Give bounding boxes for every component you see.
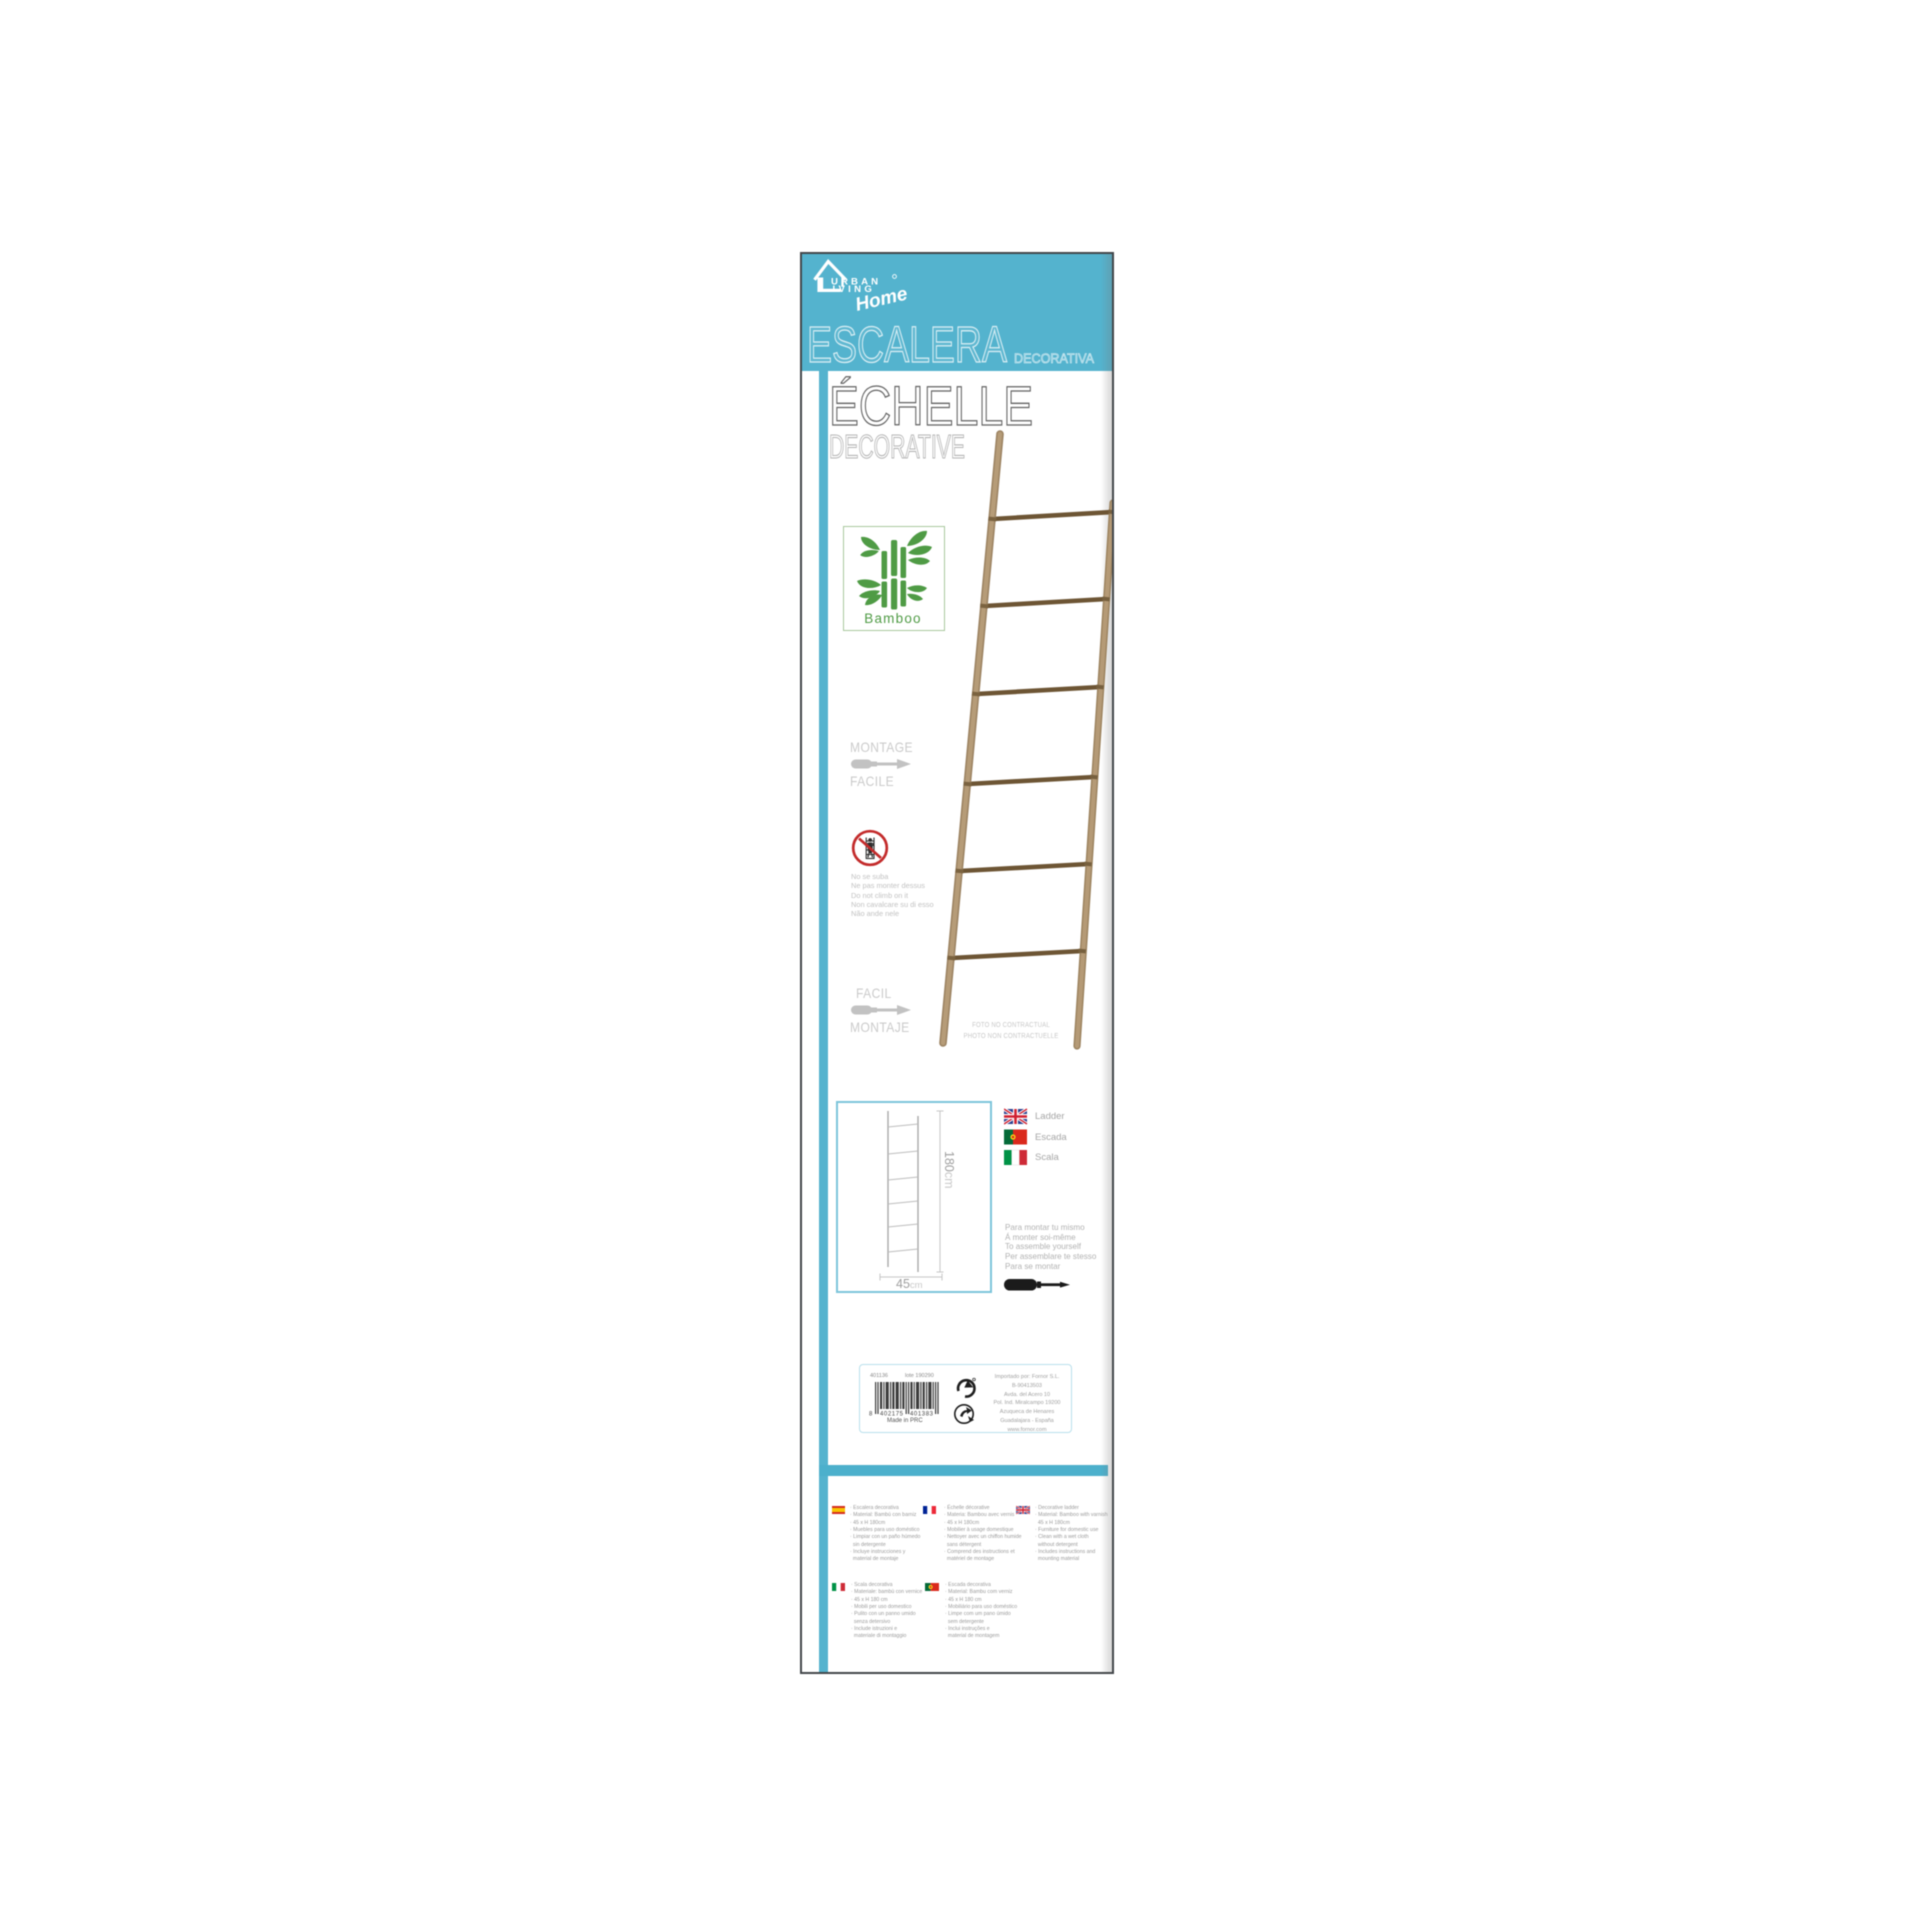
svg-text:180cm: 180cm — [942, 1151, 956, 1189]
svg-text:402175: 402175 — [880, 1412, 904, 1417]
svg-text:Bamboo: Bamboo — [864, 611, 921, 626]
svg-text:401383: 401383 — [910, 1412, 934, 1417]
svg-text:8: 8 — [869, 1412, 873, 1417]
svg-text:45cm: 45cm — [896, 1277, 923, 1291]
